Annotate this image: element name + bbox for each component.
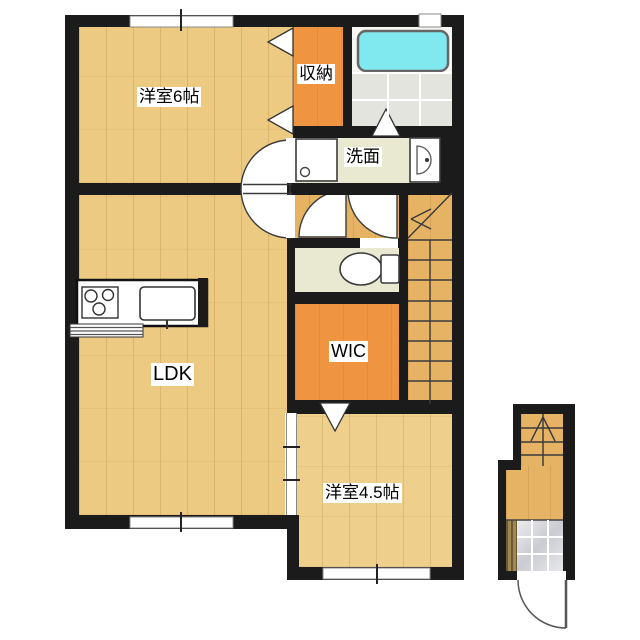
kitchen-counter-icon — [70, 278, 208, 337]
washing-machine-pan-icon — [296, 139, 337, 181]
wic-folding-door-icon — [320, 403, 350, 431]
toilet-door-swing-icon — [348, 190, 397, 238]
floor-plan: 洋室6帖 収納 洗面 LDK WIC 洋室4.5帖 — [0, 0, 640, 640]
toilet-icon — [340, 253, 399, 285]
genkan-details — [506, 520, 563, 571]
bathroom-tile-grout — [352, 73, 452, 126]
plan-linework — [0, 0, 640, 640]
room-label-washroom: 洗面 — [344, 147, 382, 167]
room-label-bedroom6: 洋室6帖 — [137, 87, 201, 107]
washbasin-icon — [410, 138, 440, 182]
bathtub-icon — [358, 31, 448, 71]
room-label-bedroom45: 洋室4.5帖 — [323, 483, 402, 503]
room-label-wic: WIC — [329, 341, 368, 362]
entrance-staircase — [521, 414, 563, 466]
main-staircase — [408, 193, 452, 404]
entrance-door-swing-icon — [518, 580, 566, 628]
bathroom-folding-door-icon — [372, 109, 400, 136]
room-label-closet: 収納 — [297, 64, 335, 84]
closet-folding-door-icon — [268, 27, 293, 134]
washroom-door-swing-icon — [299, 190, 346, 237]
room-label-ldk: LDK — [151, 363, 194, 386]
